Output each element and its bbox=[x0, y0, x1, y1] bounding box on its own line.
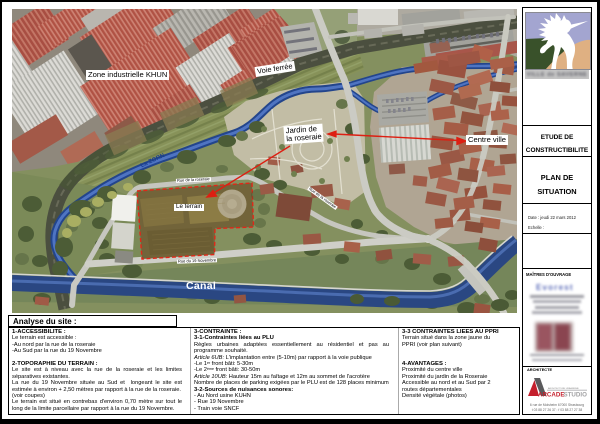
svg-text:ARCADE: ARCADE bbox=[538, 392, 564, 399]
svg-text:STUDIO: STUDIO bbox=[564, 392, 588, 399]
svg-text:ARCHITECTURE URBANISME: ARCHITECTURE URBANISME bbox=[548, 387, 579, 390]
